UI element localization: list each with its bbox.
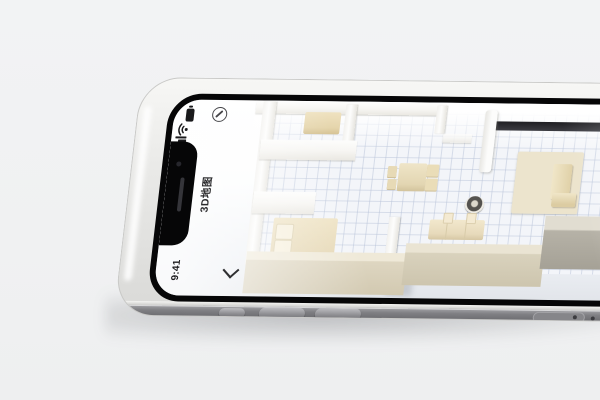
outer-wall (242, 251, 408, 295)
earpiece-speaker (177, 177, 185, 211)
screen-bezel: 9:41 3D地图 (146, 93, 600, 307)
scene: 9:41 3D地图 (0, 0, 600, 400)
status-time: 9:41 (160, 251, 194, 287)
time-text: 9:41 (170, 259, 183, 280)
outer-wall (540, 216, 600, 272)
cabinet-speaker (466, 213, 477, 224)
compass-icon (211, 106, 228, 121)
compass-button[interactable] (210, 106, 228, 122)
chair (387, 166, 397, 177)
dining-table (396, 163, 427, 191)
sofa-chaise (551, 193, 577, 207)
wall (252, 191, 317, 214)
chair (426, 164, 439, 176)
front-camera (176, 161, 182, 166)
app-screen[interactable]: 9:41 3D地图 (153, 99, 600, 301)
sim-tray (532, 312, 585, 323)
chair (387, 179, 397, 189)
cabinet-speaker (443, 213, 454, 224)
page-title-text: 3D地图 (196, 175, 215, 212)
chevron-back-icon (222, 262, 239, 279)
phone: 9:41 3D地图 (113, 64, 600, 322)
tv-cabinet (428, 220, 485, 241)
wall (259, 139, 357, 160)
back-button[interactable] (217, 258, 246, 282)
chair (425, 178, 438, 190)
phone-frame: 9:41 3D地图 (113, 77, 600, 322)
bench (303, 112, 342, 134)
pillow (275, 224, 295, 240)
low-partition (442, 134, 472, 143)
outer-wall (401, 243, 545, 287)
frame-highlight (124, 106, 153, 281)
battery-icon (181, 104, 199, 122)
mute-switch (218, 308, 245, 318)
